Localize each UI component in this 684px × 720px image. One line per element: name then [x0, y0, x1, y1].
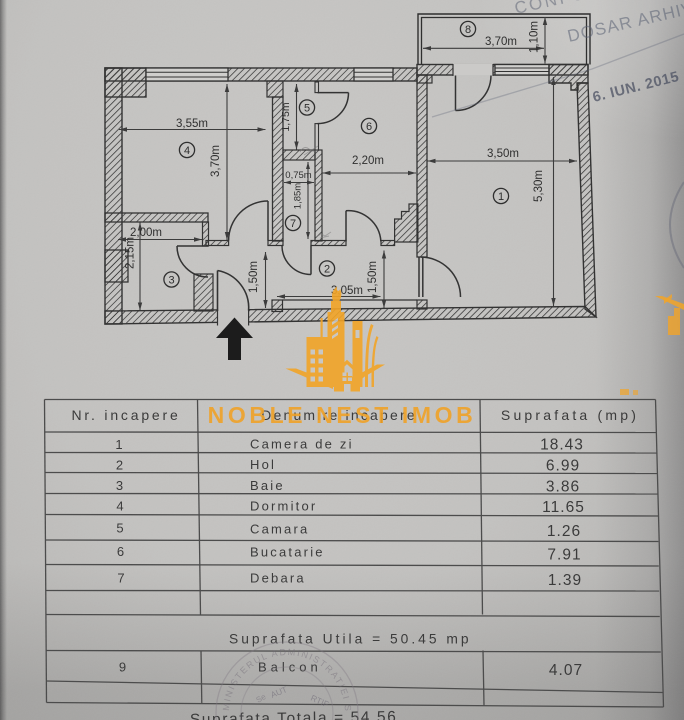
svg-text:3: 3 [168, 275, 174, 287]
svg-text:5: 5 [304, 103, 310, 115]
svg-text:7: 7 [117, 571, 124, 586]
svg-text:2: 2 [116, 458, 123, 473]
svg-text:3,70m: 3,70m [210, 145, 222, 177]
svg-text:18.43: 18.43 [540, 437, 584, 454]
svg-text:Baie: Baie [250, 478, 285, 493]
svg-text:7: 7 [290, 218, 296, 230]
svg-text:4: 4 [184, 145, 190, 157]
svg-text:Hol: Hol [250, 457, 276, 472]
svg-text:Suprafata Utila = 50.45 mp: Suprafata Utila = 50.45 mp [229, 632, 472, 647]
svg-text:Debara: Debara [250, 571, 306, 586]
svg-text:3,70m: 3,70m [485, 36, 517, 48]
svg-text:1,75m: 1,75m [280, 102, 292, 131]
svg-text:1,50m: 1,50m [367, 261, 379, 293]
svg-text:9: 9 [119, 660, 126, 675]
svg-text:4.07: 4.07 [549, 662, 583, 679]
svg-text:8: 8 [465, 24, 471, 36]
svg-text:1: 1 [115, 437, 122, 452]
svg-text:1: 1 [498, 191, 504, 203]
svg-text:1,85m: 1,85m [293, 183, 304, 209]
svg-text:3.86: 3.86 [546, 479, 580, 496]
svg-text:1.26: 1.26 [547, 523, 581, 540]
svg-text:1,50m: 1,50m [248, 261, 260, 293]
svg-text:1.39: 1.39 [548, 572, 582, 589]
svg-text:Camera de zi: Camera de zi [250, 437, 354, 452]
svg-text:6: 6 [117, 544, 124, 559]
svg-text:4: 4 [116, 499, 123, 514]
svg-text:7.91: 7.91 [547, 547, 581, 564]
svg-text:Camara: Camara [250, 522, 309, 537]
svg-text:0,75m: 0,75m [285, 170, 311, 181]
svg-text:6: 6 [366, 121, 372, 133]
svg-text:Suprafata (mp): Suprafata (mp) [501, 407, 639, 423]
svg-text:11.65: 11.65 [542, 499, 585, 516]
svg-text:6.99: 6.99 [546, 458, 580, 475]
svg-text:Suprafata Totala = 54,56: Suprafata Totala = 54,56 [190, 709, 398, 720]
svg-text:1,10m: 1,10m [529, 21, 541, 53]
svg-text:Bucatarie: Bucatarie [250, 545, 325, 560]
svg-text:3: 3 [116, 478, 123, 493]
svg-text:3,55m: 3,55m [176, 118, 208, 130]
svg-text:Nr. incapere: Nr. incapere [71, 407, 180, 423]
svg-text:2,20m: 2,20m [352, 155, 384, 167]
svg-text:NOBLE NEST IMOB: NOBLE NEST IMOB [208, 402, 477, 428]
svg-text:3,50m: 3,50m [487, 148, 519, 160]
svg-text:2: 2 [324, 264, 330, 276]
svg-text:2,15m: 2,15m [125, 237, 137, 269]
svg-text:Dormitor: Dormitor [250, 499, 317, 514]
svg-text:5: 5 [116, 521, 123, 536]
svg-text:5,30m: 5,30m [533, 170, 545, 202]
